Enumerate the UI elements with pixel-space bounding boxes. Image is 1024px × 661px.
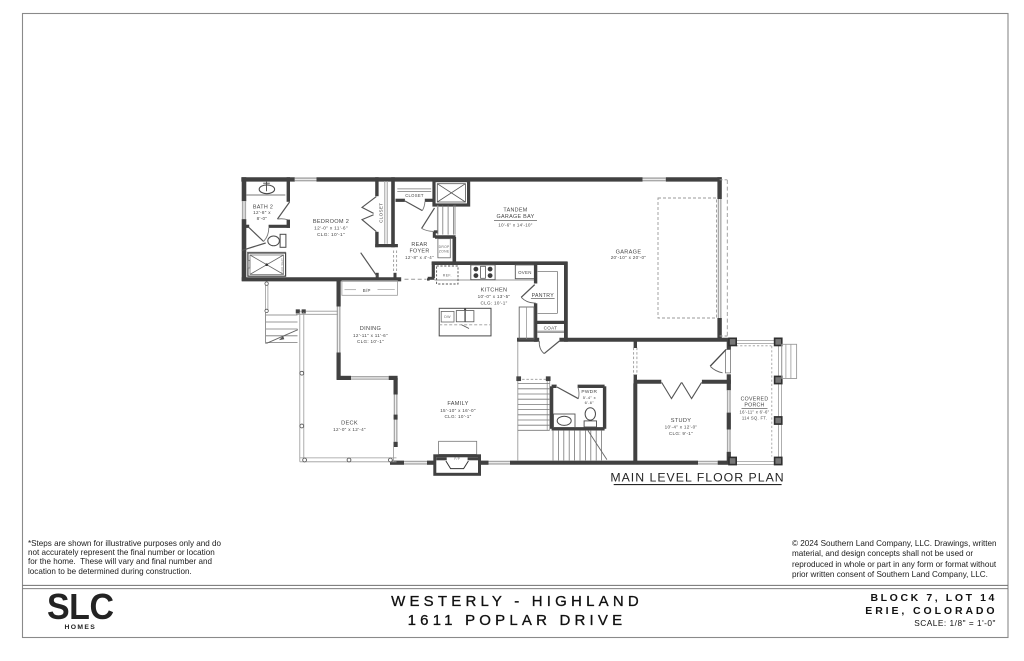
svg-text:CLG: 10'-1": CLG: 10'-1" — [445, 414, 472, 419]
svg-text:ZONE: ZONE — [439, 250, 450, 254]
svg-text:CLG: 10'-1": CLG: 10'-1" — [481, 300, 508, 305]
svg-text:STUDY: STUDY — [671, 418, 691, 424]
svg-text:12'-0" x 11'-6": 12'-0" x 11'-6" — [314, 226, 348, 232]
svg-text:CLOSET: CLOSET — [378, 203, 383, 223]
svg-text:CLOSET: CLOSET — [405, 193, 424, 198]
svg-text:16'-11" x 6'-6": 16'-11" x 6'-6" — [740, 409, 770, 414]
svg-text:CLG: 10'-1": CLG: 10'-1" — [357, 339, 384, 344]
svg-text:COAT: COAT — [544, 326, 558, 331]
svg-text:20'-10" x 20'-0": 20'-10" x 20'-0" — [611, 255, 647, 260]
svg-text:DINING: DINING — [360, 326, 381, 332]
svg-text:REAR: REAR — [411, 242, 427, 248]
svg-text:B/P: B/P — [363, 288, 371, 293]
svg-text:114 SQ. FT.: 114 SQ. FT. — [742, 415, 767, 420]
svg-text:COVERED: COVERED — [741, 396, 769, 402]
svg-text:15'-10" x 16'-0": 15'-10" x 16'-0" — [440, 408, 476, 413]
svg-text:12'-11" x 11'-6": 12'-11" x 11'-6" — [353, 333, 388, 338]
svg-text:FAMILY: FAMILY — [447, 401, 468, 407]
svg-text:DW: DW — [444, 315, 451, 319]
svg-text:GARAGE BAY: GARAGE BAY — [497, 214, 535, 220]
svg-text:FOYER: FOYER — [409, 249, 429, 255]
svg-text:F/P: F/P — [454, 457, 460, 461]
svg-text:MAIN LEVEL FLOOR PLAN: MAIN LEVEL FLOOR PLAN — [610, 470, 784, 484]
svg-text:10'-0" x 13'-5": 10'-0" x 13'-5" — [478, 294, 511, 299]
svg-text:PORCH: PORCH — [744, 403, 764, 409]
svg-text:PANTRY: PANTRY — [532, 293, 555, 299]
svg-text:SHO SEAT: SHO SEAT — [280, 258, 284, 273]
svg-text:TANDEM: TANDEM — [503, 208, 527, 214]
svg-text:KITCHEN: KITCHEN — [481, 288, 508, 294]
svg-text:BEDROOM 2: BEDROOM 2 — [313, 219, 349, 225]
svg-text:8'-0": 8'-0" — [257, 216, 268, 221]
svg-text:6'-6": 6'-6" — [585, 400, 595, 405]
svg-text:5'-4" x: 5'-4" x — [583, 395, 596, 400]
svg-text:12'-8" x: 12'-8" x — [253, 210, 271, 215]
svg-text:12'-8" x 4'-4": 12'-8" x 4'-4" — [405, 255, 434, 260]
svg-text:12'-0" x 12'-4": 12'-0" x 12'-4" — [333, 427, 366, 432]
svg-text:CLG: 10'-1": CLG: 10'-1" — [317, 232, 345, 238]
svg-text:DROP: DROP — [439, 245, 450, 249]
svg-text:DECK: DECK — [341, 421, 358, 427]
svg-text:REF.: REF. — [443, 273, 452, 277]
svg-text:10'-6" x 14'-10": 10'-6" x 14'-10" — [498, 223, 532, 228]
svg-text:10'-4" x 12'-0": 10'-4" x 12'-0" — [665, 425, 698, 430]
svg-text:OVEN: OVEN — [518, 270, 532, 275]
svg-text:CLG: 9'-1": CLG: 9'-1" — [669, 431, 693, 436]
